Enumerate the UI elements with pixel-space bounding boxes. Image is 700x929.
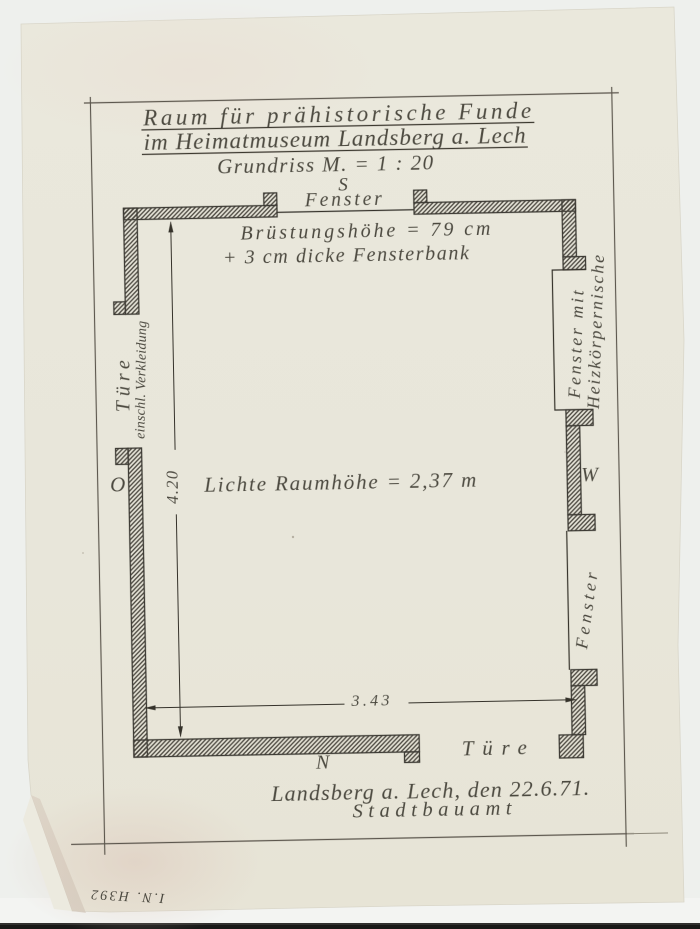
svg-text:Fenster: Fenster — [304, 189, 383, 212]
svg-text:N: N — [315, 751, 331, 773]
svg-text:3.43: 3.43 — [350, 692, 389, 710]
svg-text:Türe: Türe — [112, 360, 134, 412]
svg-text:O: O — [110, 472, 126, 496]
svg-text:W: W — [581, 464, 600, 486]
svg-text:4.20: 4.20 — [162, 470, 182, 504]
svg-text:Grundriss M. = 1 : 20: Grundriss M. = 1 : 20 — [217, 150, 434, 178]
svg-text:einschl. Verkleidung: einschl. Verkleidung — [133, 321, 150, 439]
